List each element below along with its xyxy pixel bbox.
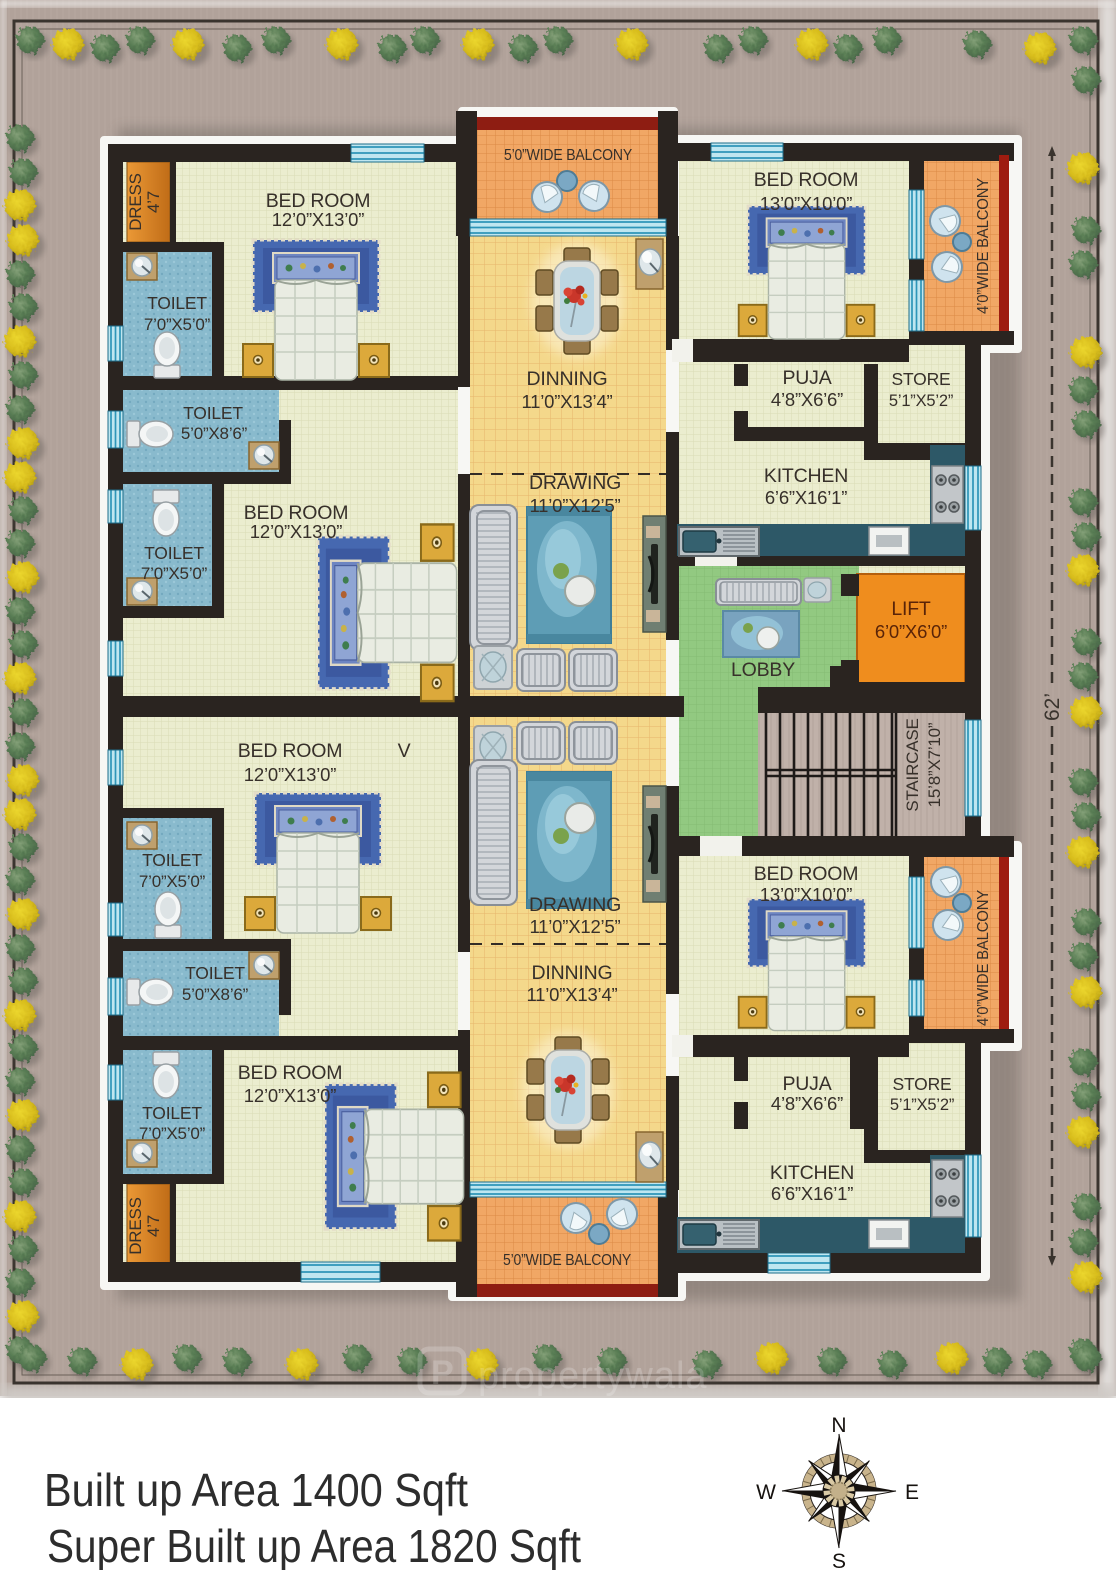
svg-text:5’0”X8’6”: 5’0”X8’6” — [181, 424, 248, 443]
svg-text:DRESS: DRESS — [126, 173, 145, 231]
svg-text:TOILET: TOILET — [142, 1103, 202, 1123]
svg-text:BED ROOM: BED ROOM — [754, 169, 859, 191]
svg-text:11’0”X12’5”: 11’0”X12’5” — [529, 495, 620, 516]
svg-text:5’0”WIDE BALCONY: 5’0”WIDE BALCONY — [504, 147, 632, 164]
svg-text:6’6”X16’1”: 6’6”X16’1” — [765, 487, 847, 508]
svg-text:7’0”X5’0”: 7’0”X5’0” — [144, 315, 211, 334]
svg-text:STAIRCASE: STAIRCASE — [903, 718, 922, 811]
svg-text:12’0”X13’0”: 12’0”X13’0” — [272, 209, 364, 230]
svg-text:N: N — [831, 1414, 846, 1437]
svg-text:12’0”X13’0”: 12’0”X13’0” — [250, 521, 342, 542]
svg-text:6’0”X6’0”: 6’0”X6’0” — [875, 621, 947, 642]
svg-text:4’8”X6’6”: 4’8”X6’6” — [771, 389, 843, 410]
svg-text:STORE: STORE — [893, 1074, 952, 1094]
svg-text:5’0”X8’6”: 5’0”X8’6” — [182, 985, 249, 1004]
svg-text:STORE: STORE — [892, 369, 951, 389]
svg-text:PUJA: PUJA — [782, 1073, 831, 1095]
svg-text:7’0”X5’0”: 7’0”X5’0” — [139, 872, 206, 891]
svg-text:12’0”X13’0”: 12’0”X13’0” — [244, 764, 336, 785]
svg-text:TOILET: TOILET — [147, 293, 207, 313]
svg-text:DRAWING: DRAWING — [529, 894, 621, 916]
svg-text:12’0”X13’0”: 12’0”X13’0” — [244, 1085, 336, 1106]
svg-text:Built up Area 1400 Sqft: Built up Area 1400 Sqft — [44, 1464, 468, 1516]
svg-text:7’0”X5’0”: 7’0”X5’0” — [141, 564, 208, 583]
svg-text:KITCHEN: KITCHEN — [764, 465, 848, 487]
svg-text:TOILET: TOILET — [142, 850, 202, 870]
svg-text:DINNING: DINNING — [532, 962, 613, 984]
svg-text:4’0”WIDE BALCONY: 4’0”WIDE BALCONY — [975, 178, 992, 314]
svg-text:4’7: 4’7 — [144, 191, 163, 213]
svg-text:V: V — [398, 740, 411, 762]
svg-text:LOBBY: LOBBY — [731, 659, 795, 681]
svg-text:DRESS: DRESS — [126, 1197, 145, 1255]
svg-text:5’1”X5’2”: 5’1”X5’2” — [889, 392, 953, 410]
svg-text:W: W — [756, 1481, 776, 1504]
svg-text:11’0”X12’5”: 11’0”X12’5” — [529, 916, 620, 937]
svg-text:PUJA: PUJA — [782, 367, 831, 389]
svg-text:4’0”WIDE BALCONY: 4’0”WIDE BALCONY — [975, 890, 992, 1026]
svg-text:TOILET: TOILET — [144, 543, 204, 563]
svg-text:7’0”X5’0”: 7’0”X5’0” — [139, 1124, 206, 1143]
svg-text:DRAWING: DRAWING — [529, 472, 621, 494]
svg-text:BED ROOM: BED ROOM — [238, 1062, 343, 1084]
svg-text:BED ROOM: BED ROOM — [754, 863, 859, 885]
svg-text:BED ROOM: BED ROOM — [238, 740, 343, 762]
svg-text:S: S — [832, 1550, 846, 1570]
svg-text:KITCHEN: KITCHEN — [770, 1162, 854, 1184]
svg-text:Super Built up Area 1820 Sqft: Super Built up Area 1820 Sqft — [47, 1520, 581, 1570]
svg-text:propertywala: propertywala — [478, 1355, 708, 1397]
svg-text:P: P — [431, 1354, 454, 1392]
svg-text:11’0”X13’4”: 11’0”X13’4” — [521, 391, 612, 412]
svg-text:TOILET: TOILET — [185, 963, 245, 983]
svg-text:13’0”X10’0”: 13’0”X10’0” — [760, 884, 852, 905]
svg-text:4’8”X6’6”: 4’8”X6’6” — [771, 1093, 843, 1114]
svg-text:13’0”X10’0”: 13’0”X10’0” — [760, 193, 852, 214]
svg-text:6’6”X16’1”: 6’6”X16’1” — [771, 1183, 853, 1204]
svg-text:4’7: 4’7 — [144, 1215, 163, 1237]
svg-text:TOILET: TOILET — [183, 403, 243, 423]
svg-text:62’: 62’ — [1041, 693, 1064, 721]
svg-text:5’1”X5’2”: 5’1”X5’2” — [890, 1096, 954, 1114]
svg-text:11’0”X13’4”: 11’0”X13’4” — [526, 984, 617, 1005]
svg-text:LIFT: LIFT — [891, 598, 931, 620]
svg-text:DINNING: DINNING — [527, 368, 608, 390]
svg-text:E: E — [905, 1481, 919, 1504]
svg-text:5’0”WIDE BALCONY: 5’0”WIDE BALCONY — [503, 1252, 631, 1269]
svg-text:15’8”X7’10”: 15’8”X7’10” — [925, 722, 944, 807]
